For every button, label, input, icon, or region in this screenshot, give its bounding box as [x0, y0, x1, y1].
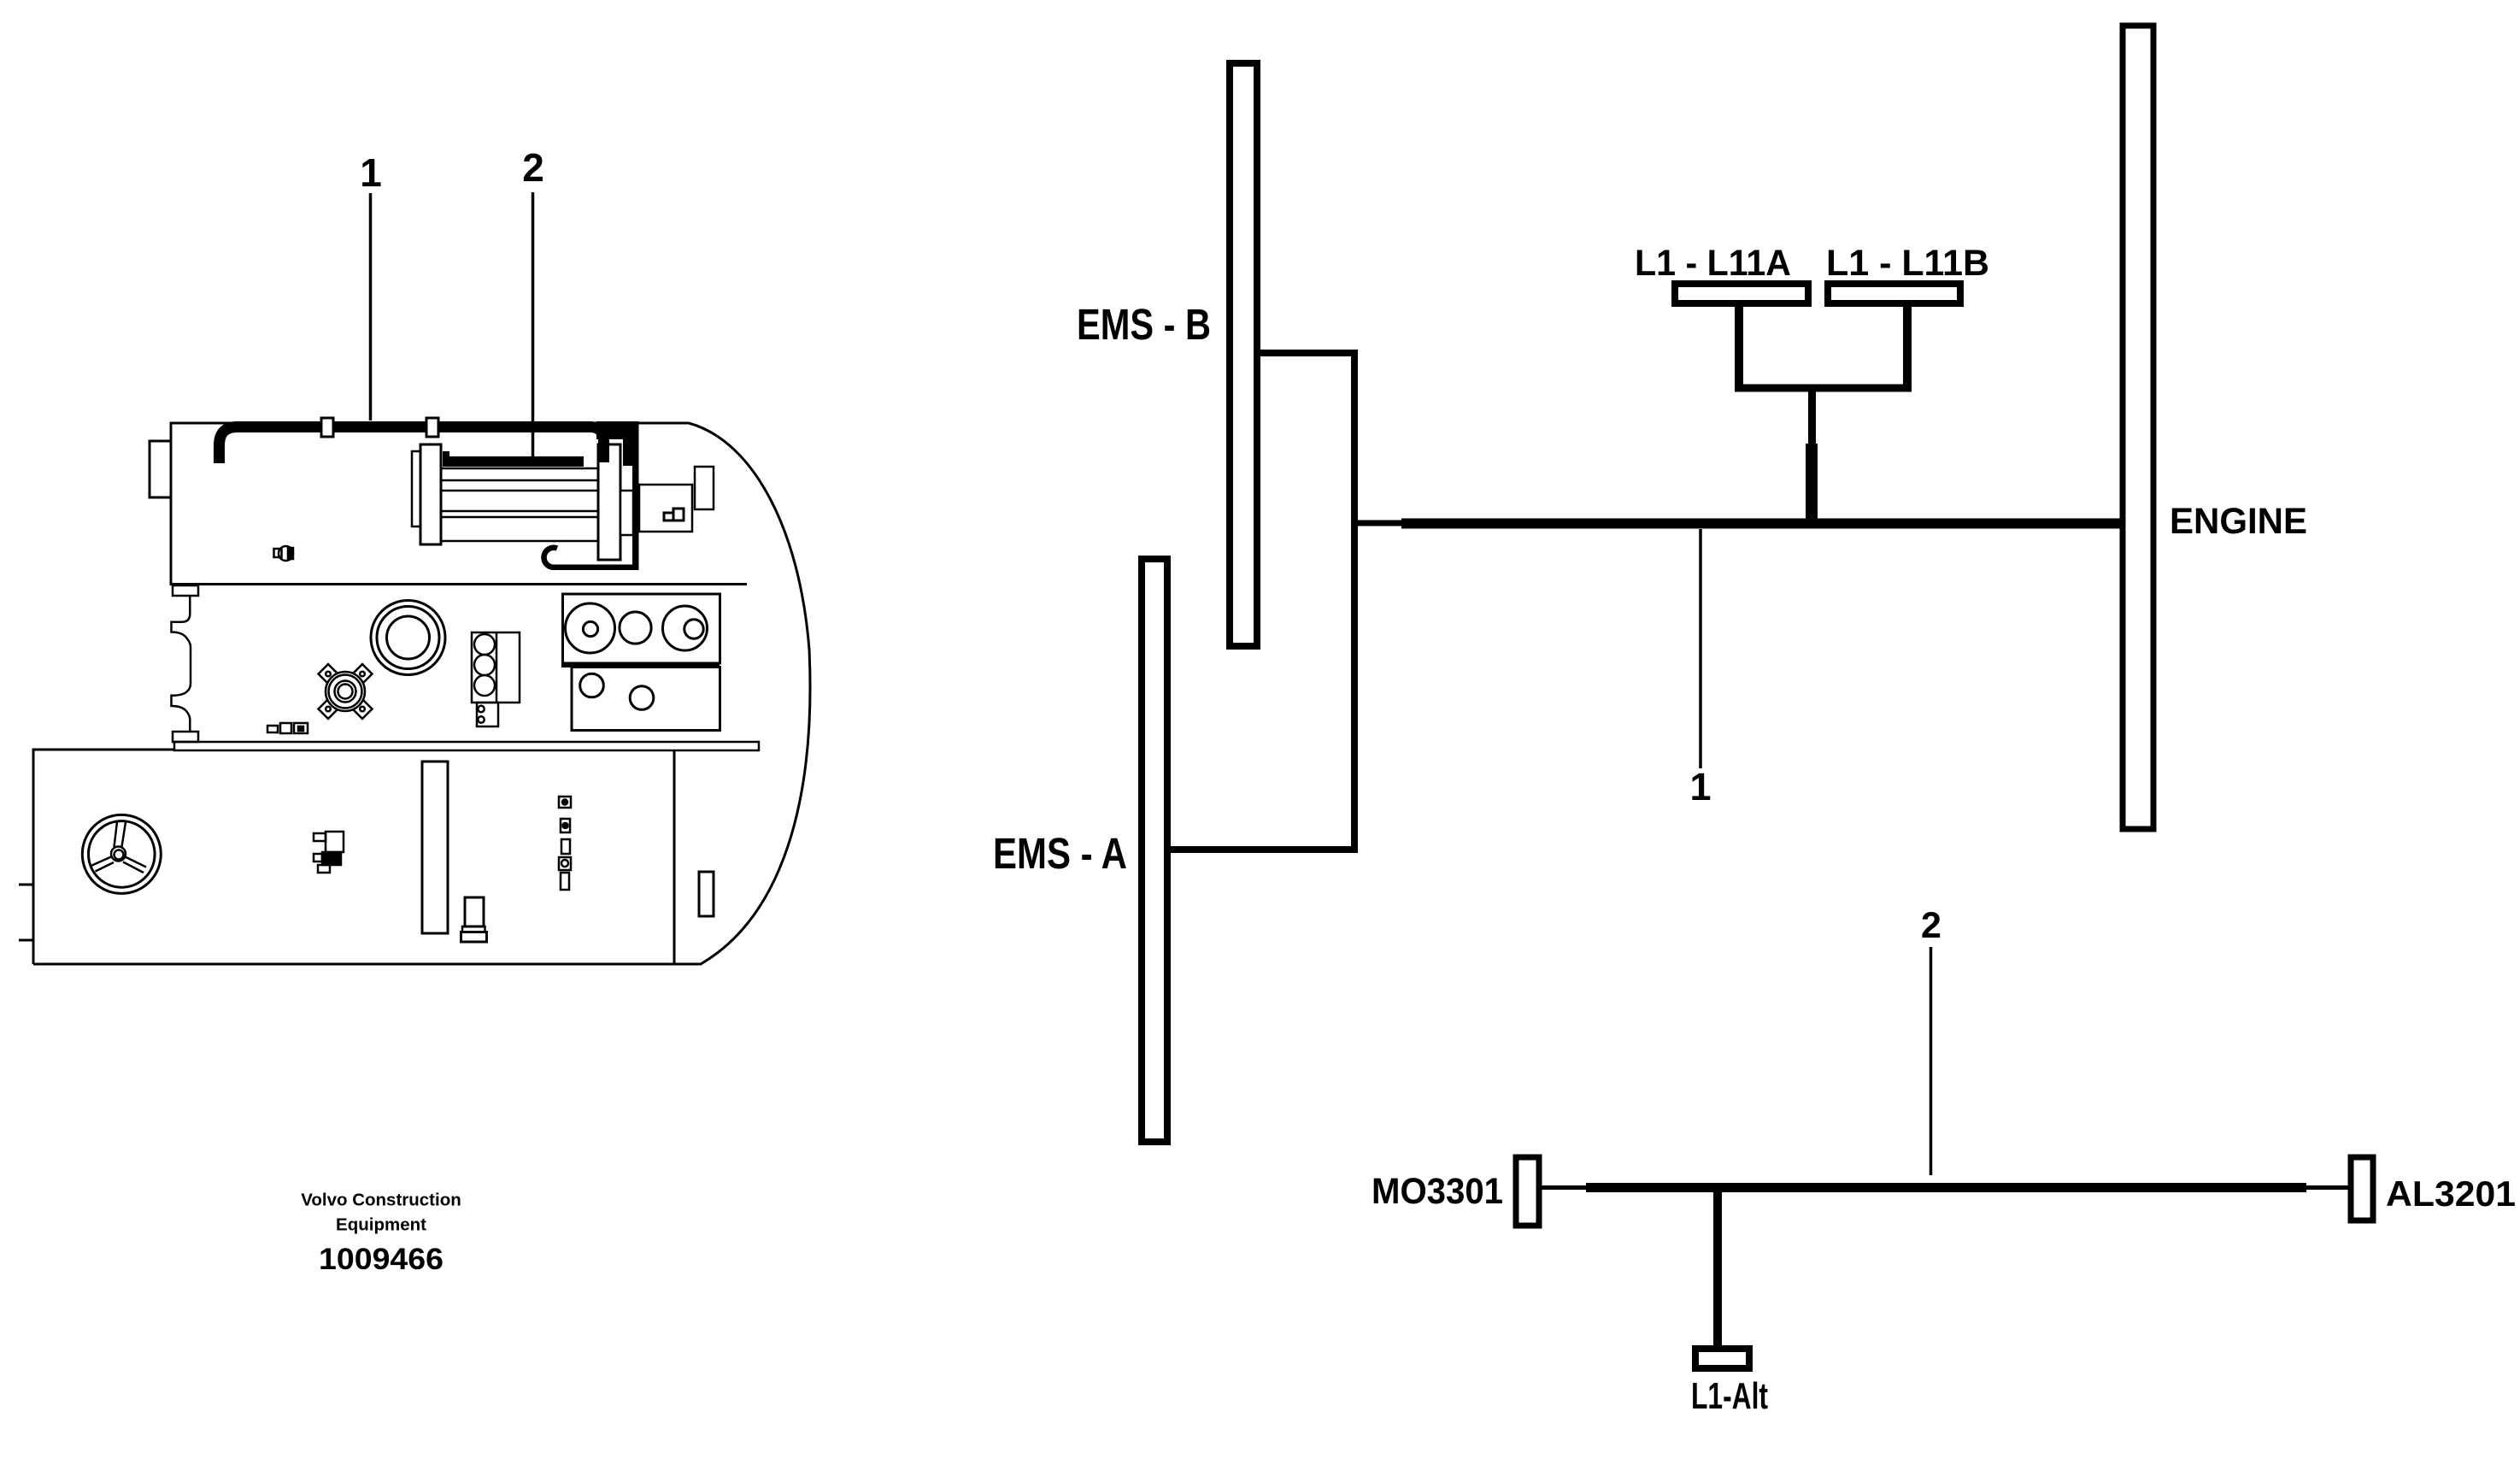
- svg-text:L1-Alt: L1-Alt: [1691, 1375, 1768, 1417]
- svg-text:Volvo Construction: Volvo Construction: [301, 1191, 461, 1210]
- svg-text:2: 2: [522, 145, 544, 190]
- svg-text:L1 - L11A: L1 - L11A: [1635, 243, 1791, 284]
- svg-text:EMS - A: EMS - A: [993, 829, 1127, 878]
- svg-text:1: 1: [360, 150, 382, 195]
- svg-text:ENGINE: ENGINE: [2170, 501, 2307, 542]
- svg-text:L1 - L11B: L1 - L11B: [1826, 243, 1989, 284]
- svg-text:MO3301: MO3301: [1372, 1171, 1503, 1212]
- svg-text:EMS - B: EMS - B: [1077, 300, 1211, 349]
- svg-text:1009466: 1009466: [319, 1243, 443, 1276]
- svg-text:2: 2: [1921, 905, 1941, 946]
- svg-text:1: 1: [1689, 765, 1711, 809]
- svg-text:AL3201: AL3201: [2386, 1173, 2516, 1214]
- svg-text:Equipment: Equipment: [336, 1215, 426, 1235]
